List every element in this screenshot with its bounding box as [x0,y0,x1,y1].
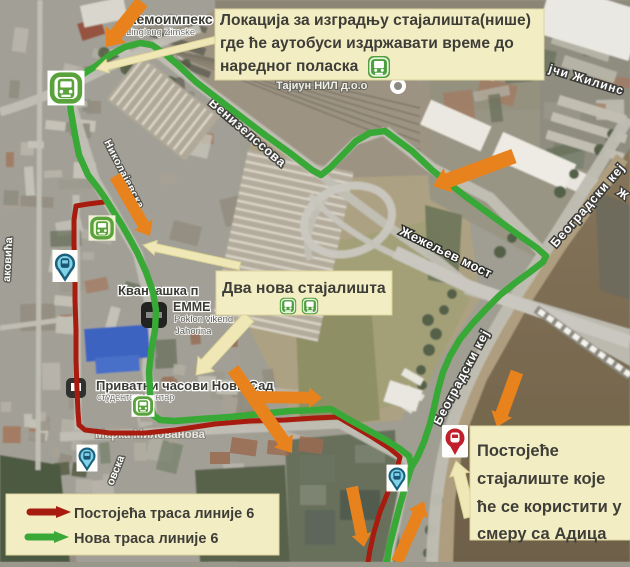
svg-text:Poklon vikend: Poklon vikend [174,314,233,325]
svg-text:Кванташка п: Кванташка п [118,283,198,298]
svg-text:Тајиун НИЛ д.о.о: Тајиун НИЛ д.о.о [276,80,368,92]
svg-text:Постојећа траса линије 6: Постојећа траса линије 6 [74,506,254,522]
svg-text:ЕММЕ: ЕММЕ [173,300,211,314]
svg-text:Linglong Zimske: Linglong Zimske [126,27,195,38]
svg-text:аковића: аковића [1,236,15,282]
svg-text:ће се користити у: ће се користити у [477,498,622,516]
svg-text:стајалиште које: стајалиште које [477,470,605,488]
svg-text:Jahorina: Jahorina [175,326,212,337]
svg-text:где ће аутобуси издржавати вре: где ће аутобуси издржавати време до [220,35,514,52]
svg-text:Локација за изградњу стајалишт: Локација за изградњу стајалишта(нише) [220,12,531,29]
svg-text:Нова траса линије 6: Нова траса линије 6 [74,531,218,547]
svg-text:Постојеће: Постојеће [477,442,559,460]
svg-text:наредног поласка: наредног поласка [220,58,359,75]
svg-text:смеру са Адица: смеру са Адица [477,525,607,543]
svg-text:Два нова стајалишта: Два нова стајалишта [222,280,386,297]
